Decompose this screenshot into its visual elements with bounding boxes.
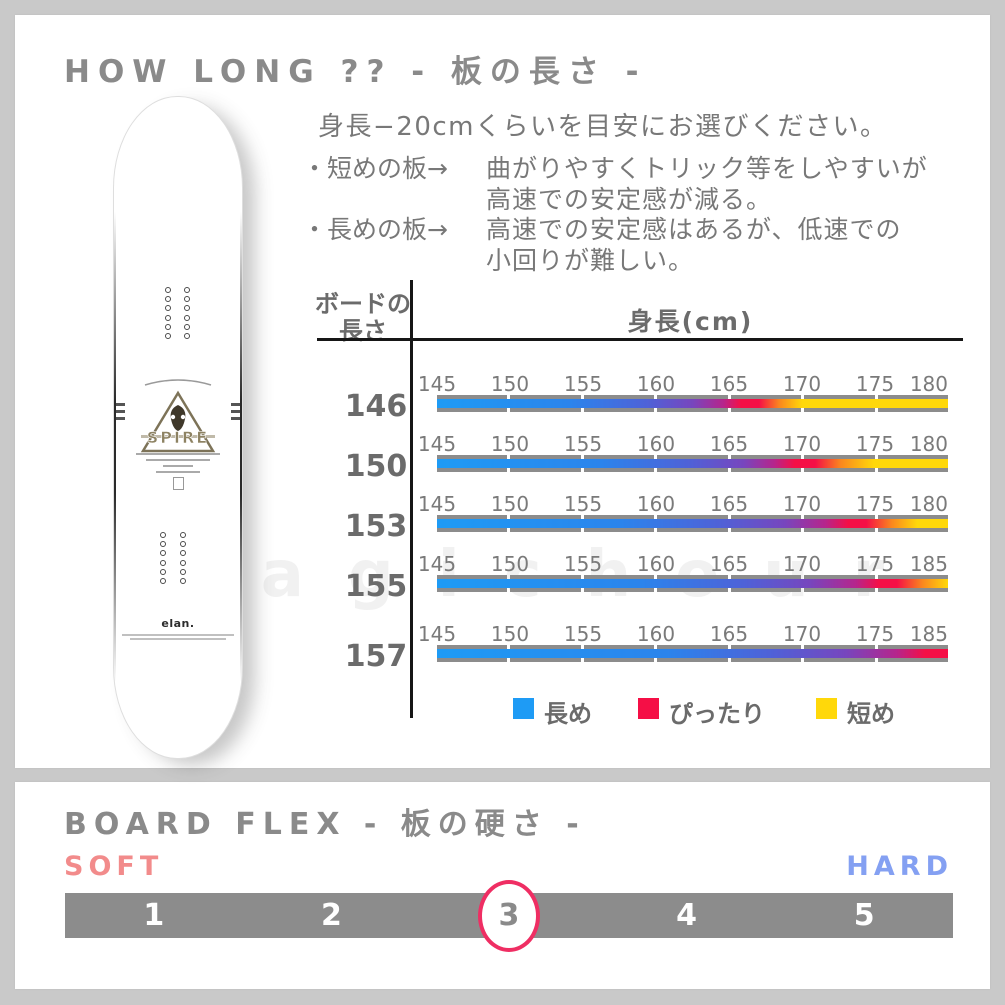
soft-label: SOFT: [64, 851, 163, 882]
board-side-mark: [231, 410, 240, 413]
height-tick-label: 160: [637, 622, 675, 646]
board-length-value: 155: [330, 569, 422, 604]
flex-level-number: 5: [775, 893, 953, 938]
height-tick-label: 155: [564, 372, 602, 396]
flex-level-number: 3: [420, 893, 598, 938]
height-tick-label: 160: [637, 432, 675, 456]
bullet-long-label: ・長めの板→: [302, 210, 448, 246]
flex-scale-bar: 12345: [65, 893, 953, 938]
binding-insert-hole: [180, 532, 186, 538]
board-left-edge: [114, 212, 116, 682]
height-tick-label: 150: [491, 622, 529, 646]
height-tick-label: 180: [910, 372, 948, 396]
board-length-value: 146: [330, 389, 422, 424]
binding-insert-hole: [160, 541, 166, 547]
fit-gradient-strip: [437, 519, 948, 528]
height-tick-label: 180: [910, 492, 948, 516]
binding-insert-hole: [160, 578, 166, 584]
height-tick-label: 155: [564, 432, 602, 456]
height-tick-label: 145: [418, 552, 456, 576]
legend-label: 短め: [847, 694, 895, 729]
legend-label: ぴったり: [669, 694, 765, 729]
height-tick-label: 170: [783, 492, 821, 516]
fit-gradient-strip: [437, 459, 948, 468]
binding-insert-hole: [165, 333, 171, 339]
binding-insert-hole: [165, 324, 171, 330]
hard-label: HARD: [846, 851, 953, 882]
height-tick-label: 175: [856, 492, 894, 516]
height-tick-label: 175: [856, 372, 894, 396]
binding-insert-hole: [184, 296, 190, 302]
height-tick-label: 145: [418, 372, 456, 396]
height-tick-label: 145: [418, 432, 456, 456]
binding-insert-hole: [184, 305, 190, 311]
board-length-value: 157: [330, 639, 422, 674]
size-row: 145150155160165170175180: [437, 372, 948, 413]
size-row: 145150155160165170175180: [437, 492, 948, 533]
fit-gradient-strip: [437, 399, 948, 408]
height-tick-label: 160: [637, 552, 675, 576]
height-tick-label: 185: [910, 622, 948, 646]
board-fineprint-line: [130, 638, 226, 640]
height-tick-label: 150: [491, 372, 529, 396]
height-tick-label: 145: [418, 492, 456, 516]
board-side-mark: [231, 403, 240, 406]
flex-level-4: 4: [598, 893, 776, 938]
board-fineprint-line: [146, 459, 210, 461]
height-tick-label: 170: [783, 372, 821, 396]
legend-color-swatch: [513, 698, 534, 719]
legend-color-swatch: [816, 698, 837, 719]
height-tick-label: 175: [856, 552, 894, 576]
height-tick-label: 145: [418, 622, 456, 646]
height-tick-label: 150: [491, 492, 529, 516]
binding-insert-hole: [184, 333, 190, 339]
size-guide-page: magichour HOW LONG ?? - 板の長さ - SPIRE ela…: [0, 0, 1005, 1005]
board-right-edge: [240, 212, 242, 682]
board-flex-title: BOARD FLEX - 板の硬さ -: [64, 799, 586, 843]
binding-insert-hole: [160, 532, 166, 538]
board-fineprint-line: [163, 465, 193, 467]
height-tick-label: 155: [564, 552, 602, 576]
board-side-mark: [116, 410, 125, 413]
binding-insert-hole: [165, 315, 171, 321]
height-tick-label: 170: [783, 552, 821, 576]
elan-logo-text: elan.: [114, 617, 242, 630]
intro-text: 身長−20cmくらいを目安にお選びください。: [318, 106, 888, 143]
height-tick-label: 170: [783, 622, 821, 646]
spire-logo-text: SPIRE: [147, 428, 209, 447]
spire-triangle-logo: SPIRE: [131, 379, 225, 469]
legend-color-swatch: [638, 698, 659, 719]
table-horizontal-line: [317, 338, 963, 341]
bullet-short-label: ・短めの板→: [302, 149, 448, 185]
binding-insert-hole: [180, 541, 186, 547]
binding-insert-hole: [184, 315, 190, 321]
flex-level-5: 5: [775, 893, 953, 938]
height-tick-label: 150: [491, 552, 529, 576]
snowboard-image: SPIRE elan.: [113, 96, 243, 759]
binding-insert-hole: [165, 287, 171, 293]
flex-level-number: 2: [243, 893, 421, 938]
height-tick-label: 160: [637, 492, 675, 516]
height-tick-label: 175: [856, 622, 894, 646]
binding-insert-hole: [184, 324, 190, 330]
board-length-value: 150: [330, 449, 422, 484]
height-tick-label: 155: [564, 622, 602, 646]
board-side-mark: [231, 417, 240, 420]
height-tick-label: 170: [783, 432, 821, 456]
fit-range-bar: [437, 575, 948, 592]
height-tick-label: 165: [710, 622, 748, 646]
bullet-long-line2: 小回りが難しい。: [486, 241, 694, 277]
fit-range-bar: [437, 515, 948, 532]
board-length-value: 153: [330, 509, 422, 544]
board-side-mark: [116, 417, 125, 420]
binding-insert-hole: [180, 569, 186, 575]
height-tick-label: 185: [910, 552, 948, 576]
flex-level-number: 4: [598, 893, 776, 938]
fit-range-bar: [437, 395, 948, 412]
height-tick-label: 165: [710, 552, 748, 576]
legend-label: 長め: [544, 694, 592, 729]
height-tick-label: 155: [564, 492, 602, 516]
flex-level-2: 2: [243, 893, 421, 938]
binding-insert-hole: [160, 560, 166, 566]
binding-insert-hole: [184, 287, 190, 293]
board-fineprint-line: [156, 471, 200, 473]
binding-insert-hole: [180, 578, 186, 584]
height-tick-label: 165: [710, 432, 748, 456]
how-long-title: HOW LONG ?? - 板の長さ -: [64, 46, 647, 91]
size-row: 145150155160165170175185: [437, 552, 948, 593]
flex-level-number: 1: [65, 893, 243, 938]
board-fineprint-box: [173, 477, 184, 490]
binding-insert-hole: [160, 569, 166, 575]
binding-insert-hole: [165, 296, 171, 302]
height-tick-label: 175: [856, 432, 894, 456]
binding-insert-hole: [165, 305, 171, 311]
board-fineprint-line: [136, 453, 220, 455]
size-row: 145150155160165170175185: [437, 622, 948, 663]
height-tick-label: 150: [491, 432, 529, 456]
fit-range-bar: [437, 455, 948, 472]
board-fineprint-line: [122, 634, 234, 636]
fit-range-bar: [437, 645, 948, 662]
binding-insert-hole: [180, 560, 186, 566]
height-tick-label: 180: [910, 432, 948, 456]
binding-insert-hole: [160, 550, 166, 556]
height-tick-label: 165: [710, 372, 748, 396]
size-row: 145150155160165170175180: [437, 432, 948, 473]
fit-gradient-strip: [437, 579, 948, 588]
flex-level-3: 3: [420, 893, 598, 938]
board-side-mark: [116, 403, 125, 406]
flex-level-1: 1: [65, 893, 243, 938]
fit-gradient-strip: [437, 649, 948, 658]
height-tick-label: 165: [710, 492, 748, 516]
binding-insert-hole: [180, 550, 186, 556]
height-tick-label: 160: [637, 372, 675, 396]
table-col-header: 身長(cm): [438, 302, 943, 338]
